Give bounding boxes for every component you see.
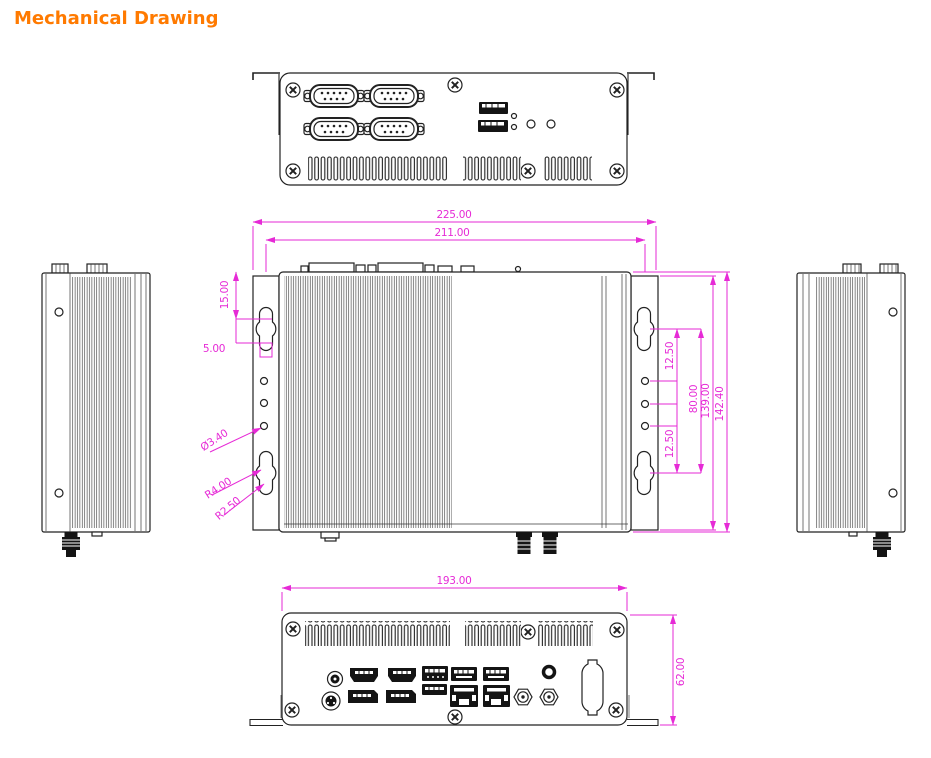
mounting-hole [642, 423, 649, 430]
db9-cutout [582, 660, 603, 715]
mounting-hole [642, 378, 649, 385]
ethernet-port-icon [450, 685, 478, 707]
svg-text:80.00: 80.00 [688, 385, 700, 414]
displayport-icon [348, 690, 378, 703]
screw-icon [521, 625, 535, 639]
sma-antenna-icon [540, 689, 558, 705]
dim-hole-diameter: Ø3.40 [198, 427, 261, 453]
svg-text:5.00: 5.00 [203, 343, 225, 355]
heatsink-fins [72, 277, 132, 528]
svg-text:R4.00: R4.00 [203, 476, 234, 502]
vent-slots [463, 155, 521, 181]
mounting-hole [261, 400, 268, 407]
side-hole [889, 489, 897, 497]
antenna-stub [52, 264, 107, 273]
heatsink-fins [284, 276, 452, 528]
dim-rear-height: 62.00 [630, 615, 687, 725]
svg-text:12.50: 12.50 [664, 342, 676, 371]
top-connector-bumps [301, 263, 521, 272]
screw-icon [286, 622, 300, 636]
serial-port-icon [364, 85, 424, 107]
mounting-bracket-right [627, 73, 654, 80]
left-side-view [42, 264, 150, 557]
vent-slots [544, 155, 592, 181]
mounting-hole [642, 401, 649, 408]
usb-header-icon [422, 666, 448, 695]
svg-text:193.00: 193.00 [437, 575, 472, 587]
mounting-hole [261, 423, 268, 430]
vent-slots [465, 621, 521, 646]
led-indicator [512, 114, 517, 119]
led-indicator [512, 125, 517, 130]
screw-icon [448, 710, 462, 724]
screw-icon [609, 703, 623, 717]
screw-icon [286, 83, 300, 97]
hdmi-port-icon [350, 668, 378, 682]
power-plug [873, 532, 891, 557]
dc-jack-icon [322, 692, 340, 710]
serial-port-icon [364, 118, 424, 140]
usb3-port-icon [451, 667, 477, 681]
keyhole-slot [256, 308, 276, 351]
drawing-canvas: 225.00 211.00 15.00 5.00 Ø3.40 [0, 0, 931, 758]
antenna-connector [542, 532, 558, 554]
serial-port-icon [304, 118, 364, 140]
antenna-connector [516, 532, 532, 554]
screw-icon [286, 164, 300, 178]
hdmi-port-icon [388, 668, 416, 682]
screw-icon [285, 703, 299, 717]
front-view [253, 263, 658, 554]
mechanical-drawing-page: Mechanical Drawing [0, 0, 931, 758]
vent-slots [308, 155, 448, 181]
ethernet-port-icon [483, 685, 510, 707]
antenna-stub [843, 264, 898, 273]
button-hole [527, 120, 535, 128]
mounting-bracket-left [253, 73, 280, 80]
svg-text:62.00: 62.00 [675, 658, 687, 687]
dim-slot-offset: 5.00 [203, 343, 225, 355]
mounting-bracket-left [250, 695, 283, 726]
button-hole [547, 120, 555, 128]
mounting-hole [261, 378, 268, 385]
svg-text:139.00: 139.00 [700, 384, 712, 419]
usb3-port-icon [483, 667, 509, 681]
vent-slots [305, 621, 450, 646]
screw-icon [610, 164, 624, 178]
screw-icon [448, 78, 462, 92]
right-side-view [797, 264, 905, 557]
bottom-connector [321, 532, 339, 538]
screw-icon [521, 164, 535, 178]
side-hole [889, 308, 897, 316]
displayport-icon [386, 690, 416, 703]
vent-slots [538, 621, 593, 646]
heatsink-fins [815, 277, 865, 528]
svg-text:R2.50: R2.50 [213, 495, 243, 523]
screw-icon [610, 623, 624, 637]
dim-rear-width: 193.00 [282, 575, 627, 611]
svg-text:142.40: 142.40 [714, 387, 726, 422]
mounting-bracket-right [627, 695, 658, 726]
svg-text:225.00: 225.00 [437, 209, 472, 221]
power-plug [62, 532, 80, 557]
serial-port-icon [304, 85, 364, 107]
bottom-view [250, 613, 658, 726]
screw-icon [610, 83, 624, 97]
audio-jack-icon [328, 672, 343, 687]
side-hole [55, 489, 63, 497]
svg-text:211.00: 211.00 [435, 227, 470, 239]
side-hole [55, 308, 63, 316]
sma-antenna-icon [514, 689, 532, 705]
top-view [253, 73, 654, 185]
svg-text:15.00: 15.00 [219, 281, 231, 310]
dim-hole-pitch-bottom: 12.50 [664, 430, 676, 459]
